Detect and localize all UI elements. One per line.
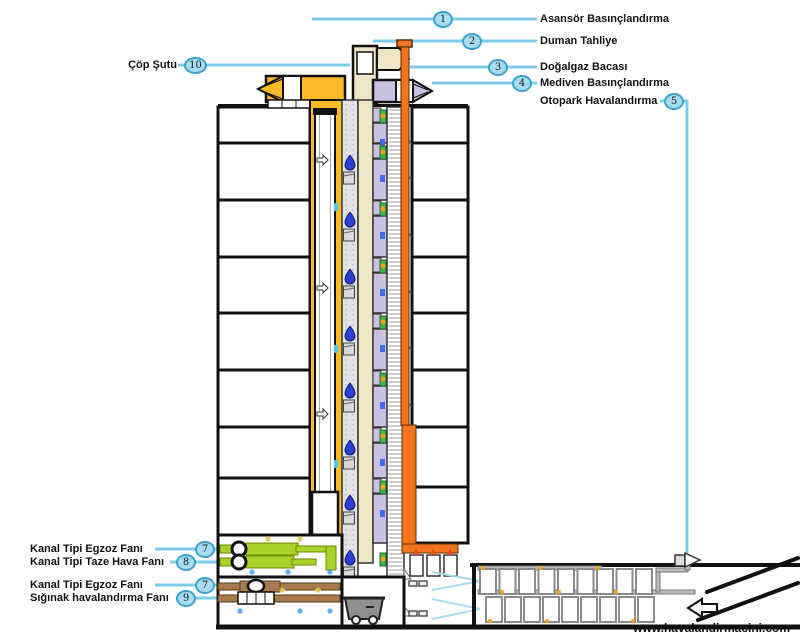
- fan-body: [246, 543, 298, 555]
- floor-room: [218, 143, 310, 200]
- flue-cap: [397, 40, 412, 47]
- smoke-shaft: [358, 100, 373, 563]
- landing-vent-mark: [380, 345, 385, 352]
- callout-bubble-4: 4: [512, 75, 532, 92]
- callout-num: 9: [183, 593, 189, 604]
- landing-vent-mark: [380, 510, 385, 517]
- callout-bubble-3: 3: [488, 59, 508, 76]
- label-kanal-taze-hava: Kanal Tipi Taze Hava Fanı: [30, 556, 164, 569]
- vent-tick: [334, 345, 338, 353]
- callout-num: 7: [202, 580, 208, 591]
- landing-vent-mark: [380, 175, 385, 182]
- label-siginak-fan: Sığınak havalandırma Fanı: [30, 592, 169, 605]
- callout-num: 3: [495, 62, 501, 73]
- callout-bubble-10: 10: [184, 57, 207, 74]
- callout-num: 8: [183, 557, 189, 568]
- parked-car: [558, 569, 574, 594]
- label-kanal-egzoz-1: Kanal Tipi Egzoz Fanı: [30, 543, 143, 556]
- floor-room: [412, 427, 468, 487]
- callout-bubble-5: 5: [664, 93, 684, 110]
- boiler: [410, 555, 423, 576]
- duct-elbow: [326, 546, 336, 570]
- callout-bubble-1: 1: [433, 11, 453, 28]
- door-knob-icon: [381, 557, 386, 562]
- callout-num: 2: [469, 36, 475, 47]
- callout-num: 7: [202, 544, 208, 555]
- parked-car: [600, 597, 616, 622]
- parked-car: [480, 569, 496, 594]
- boiler: [444, 555, 457, 576]
- landing-vent-mark: [380, 232, 385, 239]
- parked-car: [597, 569, 613, 594]
- parked-car: [562, 597, 578, 622]
- stair-press-cone-hood: [413, 80, 432, 102]
- parking-deck: [470, 553, 800, 625]
- floor-room: [218, 313, 310, 370]
- label-asansor-basinclandirma: Asansör Basınçlandırma: [540, 13, 669, 26]
- ventilation-diagram: 1 2 3 4 5 10 7 8 7 9 Asansör Basınçlandı…: [0, 0, 800, 638]
- car-symbols: [409, 581, 427, 616]
- website-link[interactable]: www.havalandirmacini.com: [570, 621, 790, 635]
- door-knob-icon: [381, 264, 386, 269]
- floor-room: [218, 200, 310, 257]
- roof-curb-left: [268, 100, 310, 108]
- door-knob-icon: [381, 377, 386, 382]
- floor-room: [412, 313, 468, 370]
- label-merdiven-basinclandirma: Mediven Basınçlandırma: [540, 77, 669, 90]
- floor-room: [218, 107, 310, 143]
- right-wing-floors: [412, 107, 468, 543]
- elevator-cab: [312, 492, 338, 535]
- label-kanal-egzoz-2: Kanal Tipi Egzoz Fanı: [30, 579, 143, 592]
- door-knob-icon: [381, 434, 386, 439]
- vent-tick: [334, 460, 338, 468]
- callout-bubble-2: 2: [462, 33, 482, 50]
- floor-room: [412, 143, 468, 200]
- callout-bubble-7a: 7: [195, 541, 215, 558]
- flue-riser-lower: [402, 425, 416, 548]
- flue-riser: [401, 47, 409, 425]
- parked-car: [524, 597, 540, 622]
- fan-impeller-icon: [232, 555, 246, 569]
- parked-car: [505, 597, 521, 622]
- floor-room: [412, 257, 468, 313]
- callout-num: 10: [189, 60, 202, 71]
- parking-row-upper: [480, 569, 652, 594]
- floor-room: [218, 478, 310, 535]
- label-duman-tahliye: Duman Tahliye: [540, 35, 617, 48]
- callout-bubble-9: 9: [176, 590, 196, 607]
- leader-5: [660, 101, 687, 554]
- smoke-exhaust-fan-box: [357, 52, 373, 74]
- callout-bubble-8: 8: [176, 554, 196, 571]
- floor-room: [412, 370, 468, 427]
- floor-room: [412, 487, 468, 543]
- parked-car: [578, 569, 594, 594]
- door-knob-icon: [381, 485, 386, 490]
- parked-car: [617, 569, 633, 594]
- parked-car: [638, 597, 654, 622]
- label-otopark-havalandirma: Otopark Havalandırma: [540, 95, 657, 108]
- callout-num: 5: [671, 96, 677, 107]
- parked-car: [539, 569, 555, 594]
- landing-vent-mark: [380, 402, 385, 409]
- parked-car: [581, 597, 597, 622]
- floor-room: [218, 257, 310, 313]
- door-knob-icon: [381, 150, 386, 155]
- floor-room: [218, 427, 310, 478]
- floor-room: [412, 107, 468, 143]
- vent-tick: [334, 203, 338, 211]
- duct: [218, 595, 340, 602]
- floor-room: [412, 200, 468, 257]
- elevator-press-fan-box: [283, 76, 301, 102]
- floor-room: [218, 370, 310, 427]
- deck-left-wall: [472, 567, 476, 625]
- door-knob-icon: [381, 207, 386, 212]
- left-wing-floors: [218, 107, 310, 535]
- label-cop-sutu: Çöp Şutu: [122, 59, 177, 72]
- landing-vent-mark: [380, 289, 385, 296]
- parked-car: [519, 569, 535, 594]
- parking-row-lower: [486, 597, 654, 622]
- parked-car: [543, 597, 559, 622]
- fan-impeller-icon: [248, 580, 264, 592]
- door-knob-icon: [381, 114, 386, 119]
- landing-vent-mark: [380, 459, 385, 466]
- elevator-machine: [313, 108, 337, 115]
- callout-num: 1: [440, 14, 446, 25]
- door-knob-icon: [381, 320, 386, 325]
- parked-car: [619, 597, 635, 622]
- elevator-hoistway: [315, 110, 335, 535]
- callout-bubble-7b: 7: [195, 577, 215, 594]
- fan-body: [246, 556, 294, 568]
- parked-car: [486, 597, 502, 622]
- parked-car: [636, 569, 652, 594]
- callout-num: 4: [519, 78, 525, 89]
- label-dogalgaz-bacasi: Doğalgaz Bacası: [540, 61, 627, 74]
